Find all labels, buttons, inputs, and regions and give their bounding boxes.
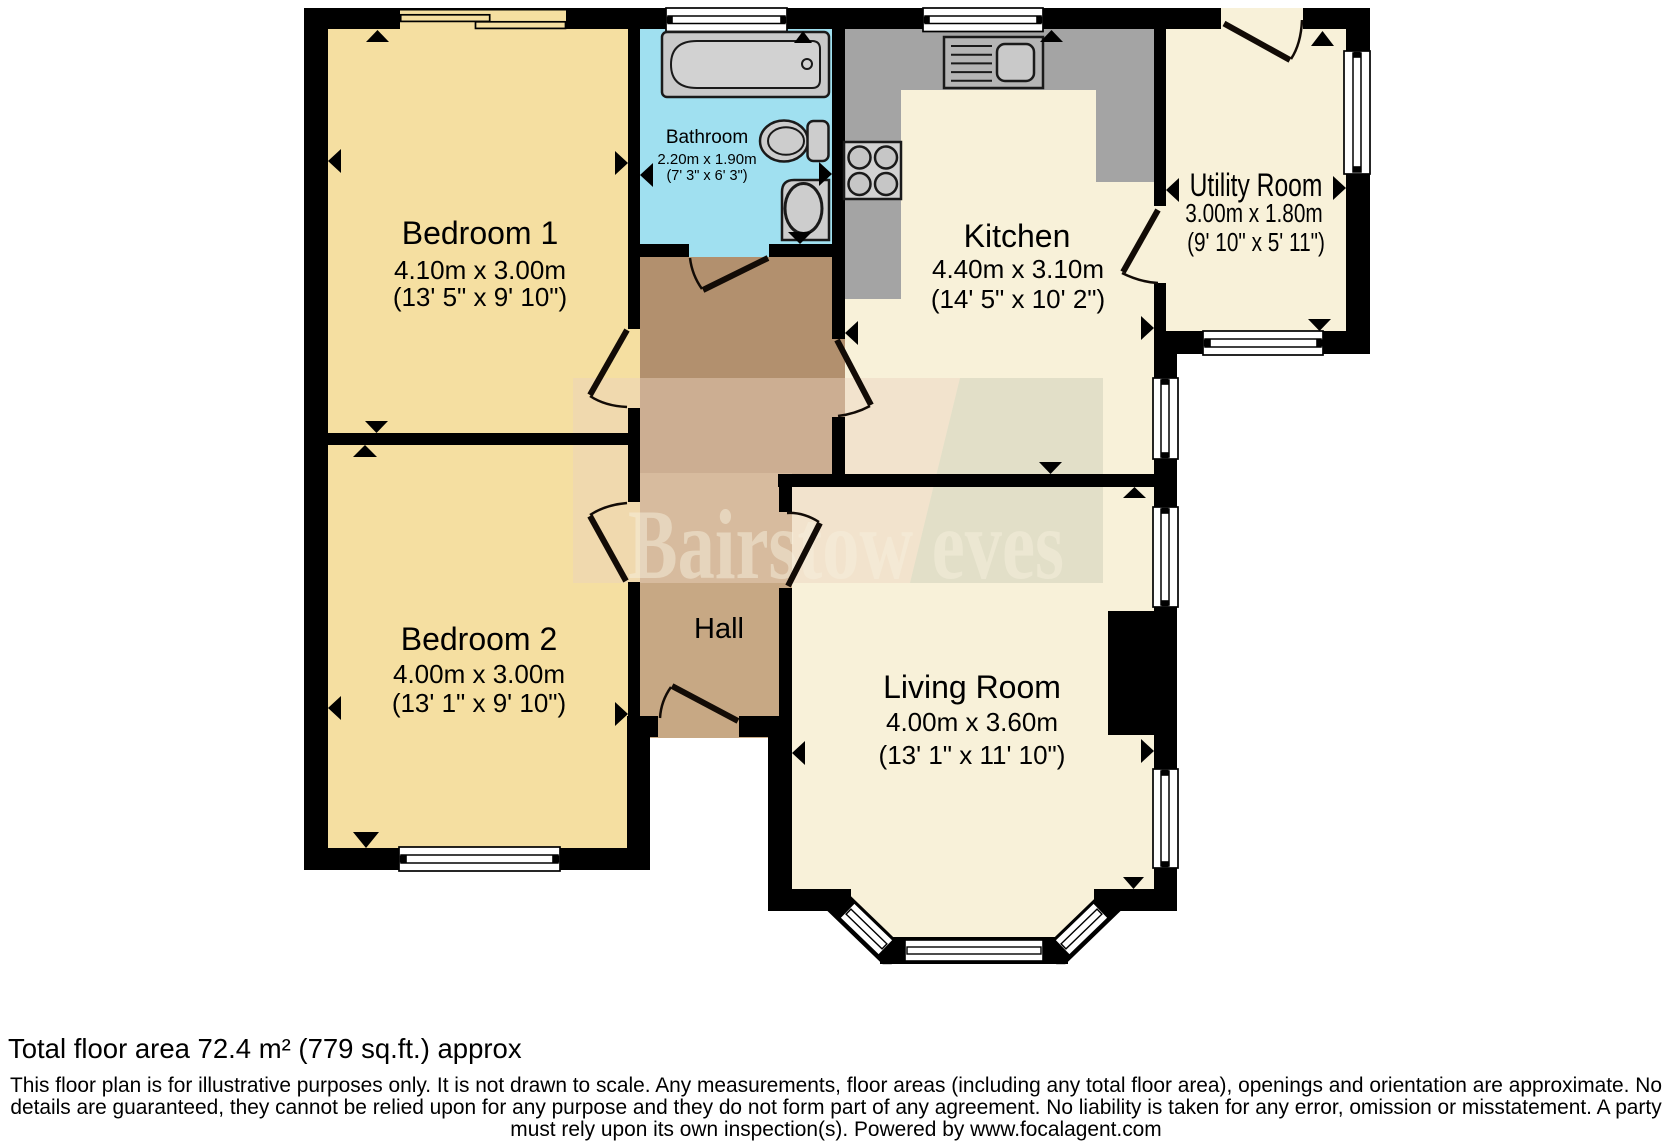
svg-text:Bairstow eves: Bairstow eves (628, 489, 1064, 600)
svg-text:details are guaranteed, they c: details are guaranteed, they cannot be r… (10, 1096, 1662, 1119)
svg-text:Bedroom 2: Bedroom 2 (401, 621, 558, 657)
svg-text:must rely upon its own inspect: must rely upon its own inspection(s). Po… (510, 1118, 1161, 1141)
svg-text:4.40m x 3.10m: 4.40m x 3.10m (932, 254, 1104, 284)
svg-text:Kitchen: Kitchen (964, 218, 1071, 254)
svg-text:(7' 3" x 6' 3"): (7' 3" x 6' 3") (666, 168, 747, 184)
svg-text:4.00m x 3.00m: 4.00m x 3.00m (393, 659, 565, 689)
svg-text:This floor plan is for illustr: This floor plan is for illustrative purp… (10, 1074, 1662, 1097)
svg-text:(13' 5" x 9' 10"): (13' 5" x 9' 10") (393, 282, 567, 312)
svg-text:(14' 5" x 10' 2"): (14' 5" x 10' 2") (931, 284, 1105, 314)
svg-text:Bedroom 1: Bedroom 1 (402, 215, 559, 251)
svg-text:(13' 1" x 9' 10"): (13' 1" x 9' 10") (392, 688, 566, 718)
svg-text:Bathroom: Bathroom (666, 127, 748, 148)
svg-text:Living Room: Living Room (883, 669, 1061, 705)
svg-text:4.10m x 3.00m: 4.10m x 3.00m (394, 255, 566, 285)
svg-text:3.00m x 1.80m: 3.00m x 1.80m (1185, 199, 1323, 228)
svg-text:4.00m x 3.60m: 4.00m x 3.60m (886, 707, 1058, 737)
svg-text:Hall: Hall (694, 613, 744, 645)
svg-text:2.20m x 1.90m: 2.20m x 1.90m (657, 151, 756, 168)
svg-text:Total floor area 72.4 m² (779: Total floor area 72.4 m² (779 sq.ft.) ap… (8, 1033, 522, 1064)
svg-text:(13' 1" x 11' 10"): (13' 1" x 11' 10") (879, 740, 1066, 770)
svg-text:(9' 10" x 5' 11"): (9' 10" x 5' 11") (1187, 228, 1325, 257)
